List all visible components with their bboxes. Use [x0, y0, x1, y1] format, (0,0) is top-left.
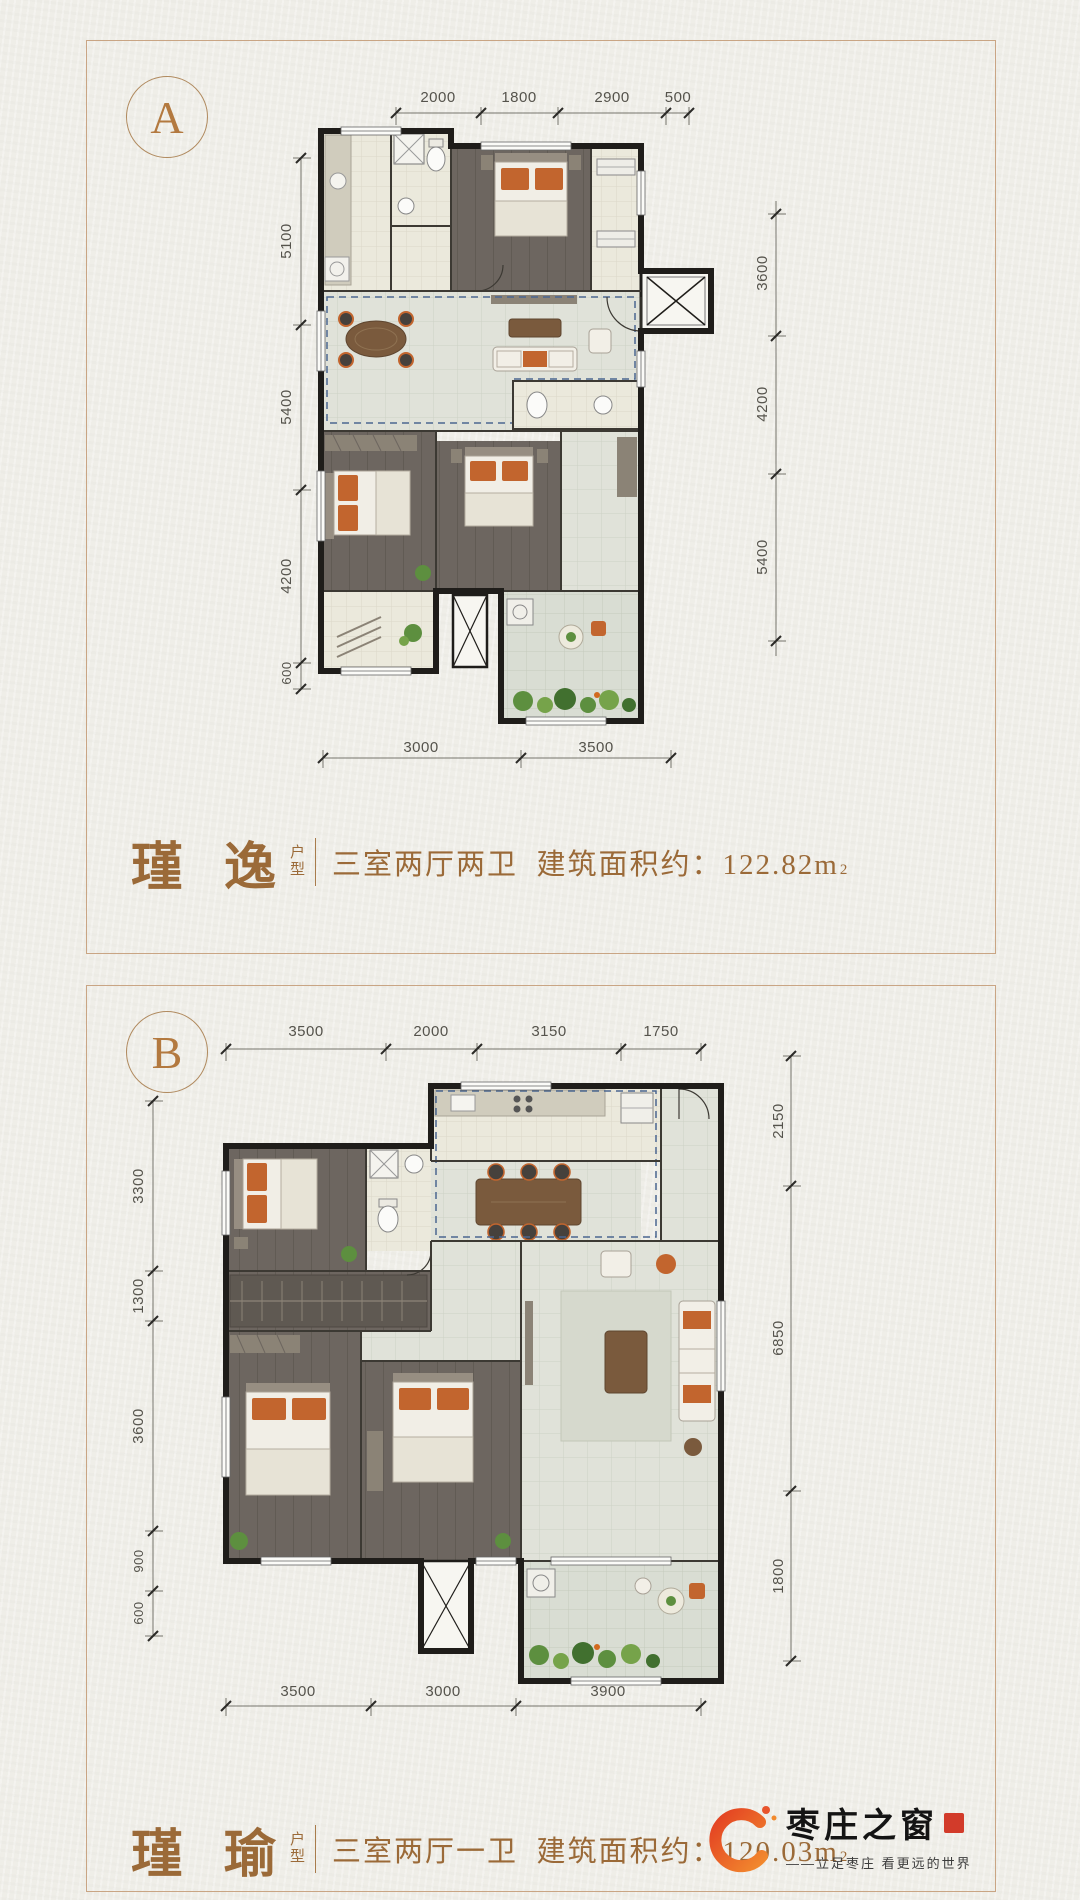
- plan-b-name: 瑾 瑜: [131, 1812, 290, 1887]
- dim-a-bottom-2: 3500: [566, 739, 626, 757]
- dim-b-right-2: 6850: [770, 1308, 788, 1368]
- plan-a-desc: 三室两厅两卫 建筑面积约： 122.82m 2: [332, 841, 849, 883]
- logo-tagline: ——立足枣庄 看更远的世界: [786, 1853, 972, 1872]
- dim-a-left-4: 600: [278, 643, 296, 703]
- dim-a-bottom-1: 3000: [391, 739, 451, 757]
- dim-b-right-3: 1800: [770, 1546, 788, 1606]
- dim-a-left-2: 5400: [278, 377, 296, 437]
- dim-a-right-3: 5400: [754, 527, 772, 587]
- plan-a-duct-shaft: [453, 595, 487, 667]
- dim-b-bottom-3: 3900: [578, 1683, 638, 1701]
- logo-name: 枣庄之窗: [786, 1798, 938, 1847]
- dim-b-left-5: 600: [130, 1583, 148, 1643]
- plan-a-title: 瑾 逸 户 型 三室两厅两卫 建筑面积约： 122.82m 2: [131, 827, 849, 897]
- dim-a-top-2: 1800: [489, 89, 549, 107]
- title-divider: [315, 838, 316, 886]
- card-plan-a: A: [86, 40, 996, 954]
- plan-a-bath2: [513, 381, 641, 429]
- plan-a-badge: A: [126, 76, 208, 158]
- dim-a-top-3: 2900: [582, 89, 642, 107]
- plan-a-type-label: 户 型: [290, 845, 305, 880]
- plan-a-type-bottom: 型: [290, 862, 305, 879]
- plan-a-floorplan: [241, 81, 801, 781]
- plan-b-duct-shaft: [421, 1561, 471, 1651]
- dim-a-left-1: 5100: [278, 211, 296, 271]
- plan-a-type-top: 户: [290, 845, 305, 862]
- plan-a-bedroom-3: [451, 447, 548, 526]
- e-swirl-icon: [698, 1798, 778, 1878]
- dim-b-left-4: 900: [130, 1531, 148, 1591]
- dim-b-right-1: 2150: [770, 1091, 788, 1151]
- plan-a-name: 瑾 逸: [131, 825, 290, 900]
- dim-b-left-2: 1300: [130, 1266, 148, 1326]
- dim-a-right-1: 3600: [754, 243, 772, 303]
- site-logo: 枣庄之窗 ——立足枣庄 看更远的世界: [698, 1798, 972, 1878]
- dim-b-top-4: 1750: [631, 1023, 691, 1041]
- dim-b-top-2: 2000: [401, 1023, 461, 1041]
- plan-b-type-label: 户 型: [290, 1832, 305, 1867]
- dim-a-top-4: 500: [648, 89, 708, 107]
- plan-a-area-exponent: 2: [840, 862, 850, 879]
- plan-a-area: 122.82m: [723, 849, 839, 882]
- dim-b-bottom-2: 3000: [413, 1683, 473, 1701]
- dim-b-bottom-1: 3500: [268, 1683, 328, 1701]
- plan-b-floorplan: [131, 1001, 831, 1731]
- dim-b-left-3: 3600: [130, 1396, 148, 1456]
- plan-a-bedroom-master: [481, 153, 581, 236]
- plan-b-type-bottom: 型: [290, 1849, 305, 1866]
- plan-a-linen: [617, 437, 637, 497]
- card-plan-b: B: [86, 985, 996, 1892]
- plan-a-elevator-shaft: [641, 271, 711, 331]
- dim-b-left-1: 3300: [130, 1156, 148, 1216]
- dim-b-top-1: 3500: [276, 1023, 336, 1041]
- dim-b-top-3: 3150: [519, 1023, 579, 1041]
- plan-a-desc-text: 三室两厅两卫 建筑面积约：: [332, 841, 723, 883]
- dim-a-top-1: 2000: [408, 89, 468, 107]
- plan-a-kitchen: [325, 135, 351, 285]
- poster: A: [0, 0, 1080, 1900]
- plan-b-type-top: 户: [290, 1832, 305, 1849]
- plan-b-desc-text: 三室两厅一卫 建筑面积约：: [332, 1828, 723, 1870]
- plan-b-dining: [476, 1164, 581, 1240]
- title-divider: [315, 1825, 316, 1873]
- dim-a-right-2: 4200: [754, 374, 772, 434]
- plan-a-badge-letter: A: [150, 91, 183, 144]
- dim-a-left-3: 4200: [278, 546, 296, 606]
- plan-b-wardrobe: [230, 1275, 427, 1327]
- logo-text: 枣庄之窗 ——立足枣庄 看更远的世界: [786, 1798, 972, 1872]
- logo-seal-icon: [944, 1813, 964, 1833]
